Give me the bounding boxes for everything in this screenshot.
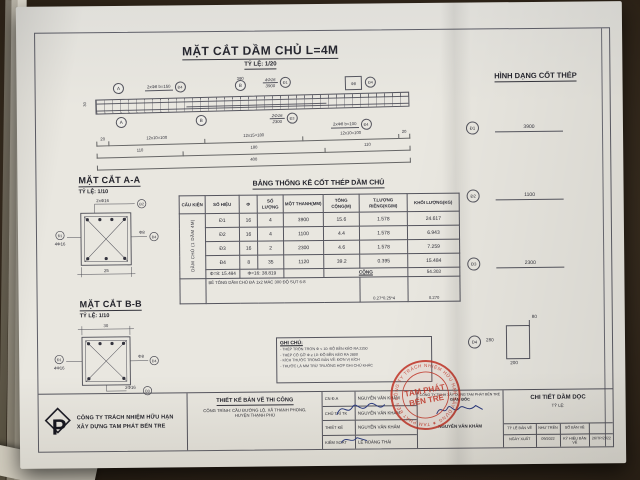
company-logo-icon: P (43, 407, 73, 439)
top-bars-callout: 4Φ163900 Đ1 (263, 77, 291, 89)
doc-type: THIẾT KẾ BẢN VẼ THI CÔNG (216, 397, 293, 406)
cut-marker-a-bottom: A (116, 117, 127, 128)
stirrup-height-dim: 280 (486, 337, 494, 342)
stirrup-left-label: 2xΦ8 b=150 (145, 84, 173, 92)
frame-inner-line (601, 28, 606, 446)
company-cell: P CÔNG TY TRÁCH NHIỆM HỮU HẠN XÂY DỰNG T… (39, 393, 189, 451)
section-b-title: MẶT CẮT B-B (80, 299, 142, 312)
drawing-info-cell: CHI TIẾT DẦM DỌC TỶ LỆ: TỶ LỆ BẢN VẼ NHƯ… (503, 389, 613, 447)
section-a-outline (55, 199, 158, 277)
cut-marker-a: A (113, 83, 124, 94)
bottom-bars-callout: 2Φ162300 Đ3 (270, 113, 298, 125)
rebar-shape-d3: Đ3 2300 (467, 256, 617, 270)
top-bars-length: 3900 (265, 83, 275, 88)
table-concrete-row: BÊ TÔNG DẦM CHỦ ĐÁ 1x2 MÁC 300 ĐỘ SỤT 6-… (180, 276, 460, 304)
beam-height-dim: 30 (82, 102, 87, 107)
rebar-table: CẤU KIỆN SỐ HIỆU Φ SỐ LƯỢNG MỘT THANH(MM… (179, 193, 461, 304)
rebar-ref-circle: Đ1 (58, 234, 63, 238)
section-a-left-callout: 4Φ16 (55, 241, 66, 246)
concrete-note: BÊ TÔNG DẦM CHỦ ĐÁ 1x2 MÁC 300 ĐỘ SỤT 6-… (206, 277, 360, 303)
col-header: T.LƯỢNG RIÊNG(KG/M) (359, 194, 407, 212)
rebar-shape-d4: Đ4 280 80 200 (466, 317, 577, 390)
rebar-ref-circle: Đ3 (286, 113, 297, 124)
company-name-line2: XÂY DỰNG TAM PHÁT BẾN TRE (77, 422, 174, 431)
rebar-shape-d1: Đ1 3900 (466, 120, 616, 134)
stirrup-outline (506, 325, 530, 359)
beam-body (95, 92, 409, 115)
section-a-top-callout: 2xΦ16 (96, 198, 109, 203)
dim-label: 12x10=100 (303, 128, 398, 135)
col-header: SỐ LƯỢNG (257, 195, 283, 213)
main-scale: TỶ LỆ: 1/20 (244, 61, 276, 69)
rebar-ref-circle: Đ4 (152, 235, 157, 239)
photo-scene: MẶT CẮT DẦM CHỦ L=4M TỶ LỆ: 1/20 390 A 2… (0, 0, 640, 480)
section-b-right-callout: Φ8 (138, 354, 144, 359)
beam-dim-row-total: 400 (97, 158, 411, 175)
section-b-width-dim: 30 (103, 323, 108, 328)
section-a-scale: TỶ LỆ: 1/10 (79, 189, 141, 196)
dim-label: 20 (97, 136, 108, 141)
section-b-outline (55, 326, 159, 396)
rebar-ref-circle: Đ4 (174, 81, 185, 92)
info-value: 09/2022 (537, 435, 561, 447)
rebar-ref-circle: Đ3 (467, 257, 480, 270)
svg-text:P: P (52, 414, 67, 439)
rebar-table-title: BẢNG THỐNG KÊ CỐT THÉP DẦM CHỦ (178, 179, 458, 191)
info-label: KÝ HIỆU BẢN VẼ (561, 435, 591, 447)
rebar-ref-circle: Đ4 (468, 335, 481, 348)
section-b-b-drawing: 30 Đ1 4Φ16 Φ8 Đ4 2Φ16 Đ3 (50, 320, 173, 397)
section-b-scale: TỶ LỆ: 1/10 (80, 313, 142, 320)
drawing-sheet: MẶT CẮT DẦM CHỦ L=4M TỶ LỆ: 1/20 390 A 2… (16, 1, 626, 469)
shape-length: 1100 (496, 191, 564, 200)
bottom-bars-length: 2300 (272, 119, 282, 124)
info-label: TỶ LỆ BẢN VẼ (504, 424, 537, 435)
concrete-volume: 0.270 (408, 276, 460, 301)
rebar-ref-circle: Đ1 (57, 358, 62, 362)
col-header: SỐ HIỆU (205, 195, 239, 213)
rebar-ref-circle: Đ2 (467, 189, 480, 202)
stirrup-hook-dim: 80 (532, 314, 537, 319)
info-value: 26/TP/2022 (590, 434, 613, 446)
company-stamp: CÔNG TY TRÁCH NHIỆM HỮU HẠN XÂY DỰNG ★ T… (382, 352, 468, 438)
drawing-frame: MẶT CẮT DẦM CHỦ L=4M TỶ LỆ: 1/20 390 A 2… (34, 27, 614, 453)
main-drawing-title-block: MẶT CẮT DẦM CHỦ L=4M TỶ LỆ: 1/20 (125, 42, 395, 71)
dim-label: 110 (97, 146, 182, 153)
col-header: TỔNG CỘNG(M) (323, 194, 359, 212)
col-header: KHỐI LƯỢNG(KG) (407, 193, 459, 211)
group-cell: DẦM CHỦ (1 DẦM 4M) (179, 214, 206, 279)
drawing-title: CHI TIẾT DẦM DỌC (503, 394, 612, 401)
signature-scribble (335, 398, 387, 420)
section-b-bottom-callout: 2Φ16 (125, 385, 136, 390)
info-label: NGÀY XUẤT (504, 435, 537, 447)
dim-label: 12x10=100 (109, 133, 204, 140)
dim-label: 110 (325, 140, 409, 147)
section-b-heading: MẶT CẮT B-B TỶ LỆ: 1/10 (80, 299, 142, 320)
info-label: SỐ BẢN VẼ (560, 424, 590, 435)
section-a-right-callout: Φ8 (139, 230, 145, 235)
drawing-info-grid: TỶ LỆ BẢN VẼ NHƯ TRÊN SỐ BẢN VẼ NGÀY XUẤ… (504, 422, 613, 447)
rebar-ref-circle: Đ4 (152, 359, 157, 363)
dim-label: 20 (399, 128, 409, 133)
col-header: MỘT THANH(MM) (283, 194, 323, 212)
title-block: P CÔNG TY TRÁCH NHIỆM HỮU HẠN XÂY DỰNG T… (39, 388, 614, 452)
rebar-ref-circle: Đ2 (139, 202, 144, 206)
hanger-label: Φ8 (351, 81, 357, 86)
shape-length: 3900 (495, 123, 563, 132)
stirrup-width-dim: 200 (510, 360, 518, 365)
col-header: CẤU KIỆN (179, 196, 205, 214)
hanger-detail-box: Φ8 (345, 76, 362, 90)
rebar-ref-circle: Đ1 (279, 77, 290, 88)
project-name-line2: HUYỆN THẠNH PHÚ (188, 412, 322, 419)
cut-marker-b-bottom: B (196, 115, 207, 126)
stirrup-left-callout: 2xΦ8 b=150 Đ4 (145, 81, 186, 93)
info-value (590, 423, 613, 434)
dim-label: 12x15=180 (205, 131, 302, 138)
drawing-scale: TỶ LỆ: (504, 402, 613, 423)
section-b-left-callout: 4Φ16 (54, 365, 65, 370)
section-a-width-dim: 25 (104, 268, 109, 273)
beam-elevation-drawing: 390 A 2xΦ8 b=150 Đ4 B 4Φ163900 Đ1 Φ8 Đ4 (87, 73, 419, 179)
rebar-shape-d2: Đ2 1100 (467, 188, 617, 202)
info-value: NHƯ TRÊN (536, 424, 560, 435)
section-a-title: MẶT CẮT A-A (78, 175, 140, 188)
stirrup-right-label: 2xΦ8 b=100 (331, 121, 359, 129)
concrete-calc: 0.27*0.25*4 (360, 276, 408, 301)
signature-scribble (339, 433, 369, 447)
section-a-heading: MẶT CẮT A-A TỶ LỆ: 1/10 (78, 175, 140, 196)
rebar-ref-circle: Đ4 (365, 77, 376, 88)
company-name-line1: CÔNG TY TRÁCH NHIỆM HỮU HẠN (77, 414, 174, 423)
main-title: MẶT CẮT DẦM CHỦ L=4M (182, 43, 338, 60)
col-header: Φ (239, 195, 257, 213)
section-a-a-drawing: 2xΦ16 Đ2 Đ1 4Φ16 Φ8 Đ4 25 (51, 196, 170, 289)
shape-length: 2300 (496, 259, 564, 268)
rebar-ref-circle: Đ1 (466, 121, 479, 134)
cut-marker-b: B (235, 80, 246, 91)
project-cell: THIẾT KẾ BẢN VẼ THI CÔNG CÔNG TRÌNH: CẦU… (188, 392, 323, 450)
shapes-title: HÌNH DẠNG CỐT THÉP (455, 70, 615, 83)
